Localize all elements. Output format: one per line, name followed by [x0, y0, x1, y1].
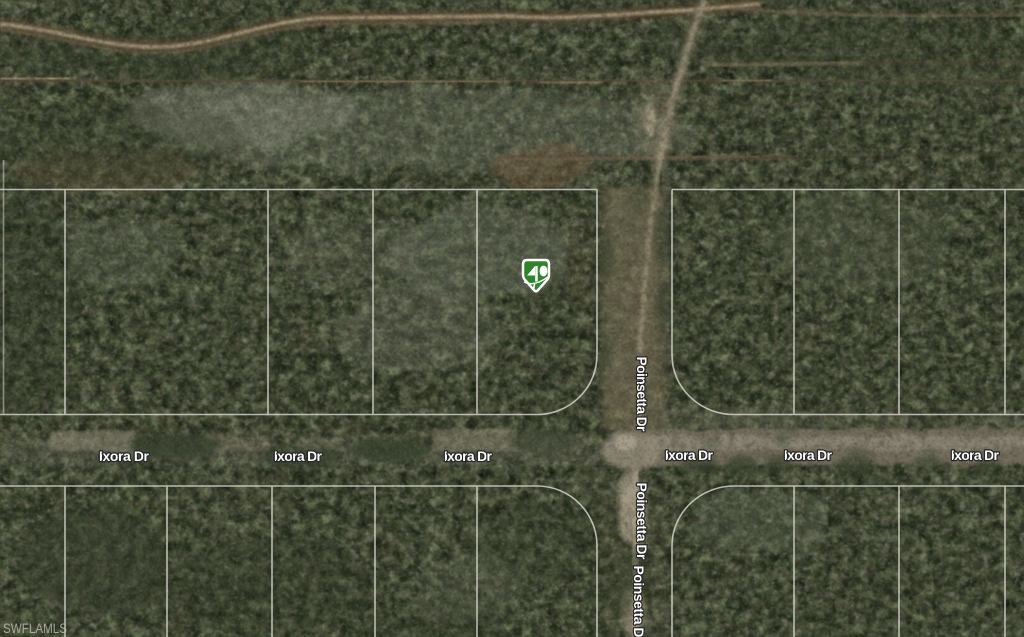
svg-text:Ixora Dr: Ixora Dr	[99, 448, 150, 464]
svg-text:Ixora Dr: Ixora Dr	[784, 447, 833, 463]
svg-text:Ixora Dr: Ixora Dr	[444, 448, 493, 464]
svg-text:Poinsetta Dr: Poinsetta Dr	[631, 566, 647, 637]
svg-text:Poinsetta Dr: Poinsetta Dr	[634, 357, 650, 433]
svg-text:Ixora Dr: Ixora Dr	[665, 447, 714, 463]
svg-text:Ixora Dr: Ixora Dr	[274, 448, 323, 464]
svg-text:SWFLAMLS: SWFLAMLS	[3, 621, 67, 636]
svg-text:Ixora Dr: Ixora Dr	[951, 447, 1000, 463]
svg-text:Poinsetta Dr: Poinsetta Dr	[634, 483, 650, 561]
